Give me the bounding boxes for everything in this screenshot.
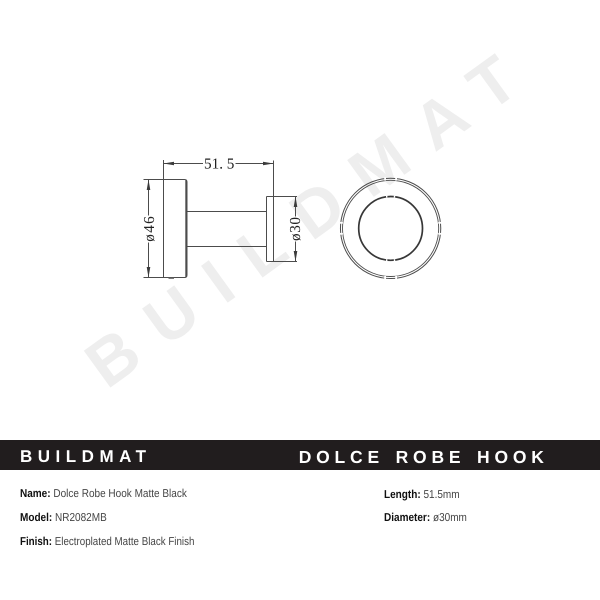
svg-text:ø46: ø46 [141, 216, 158, 242]
svg-text:51. 5: 51. 5 [204, 156, 234, 173]
svg-text:ø30: ø30 [287, 217, 304, 241]
